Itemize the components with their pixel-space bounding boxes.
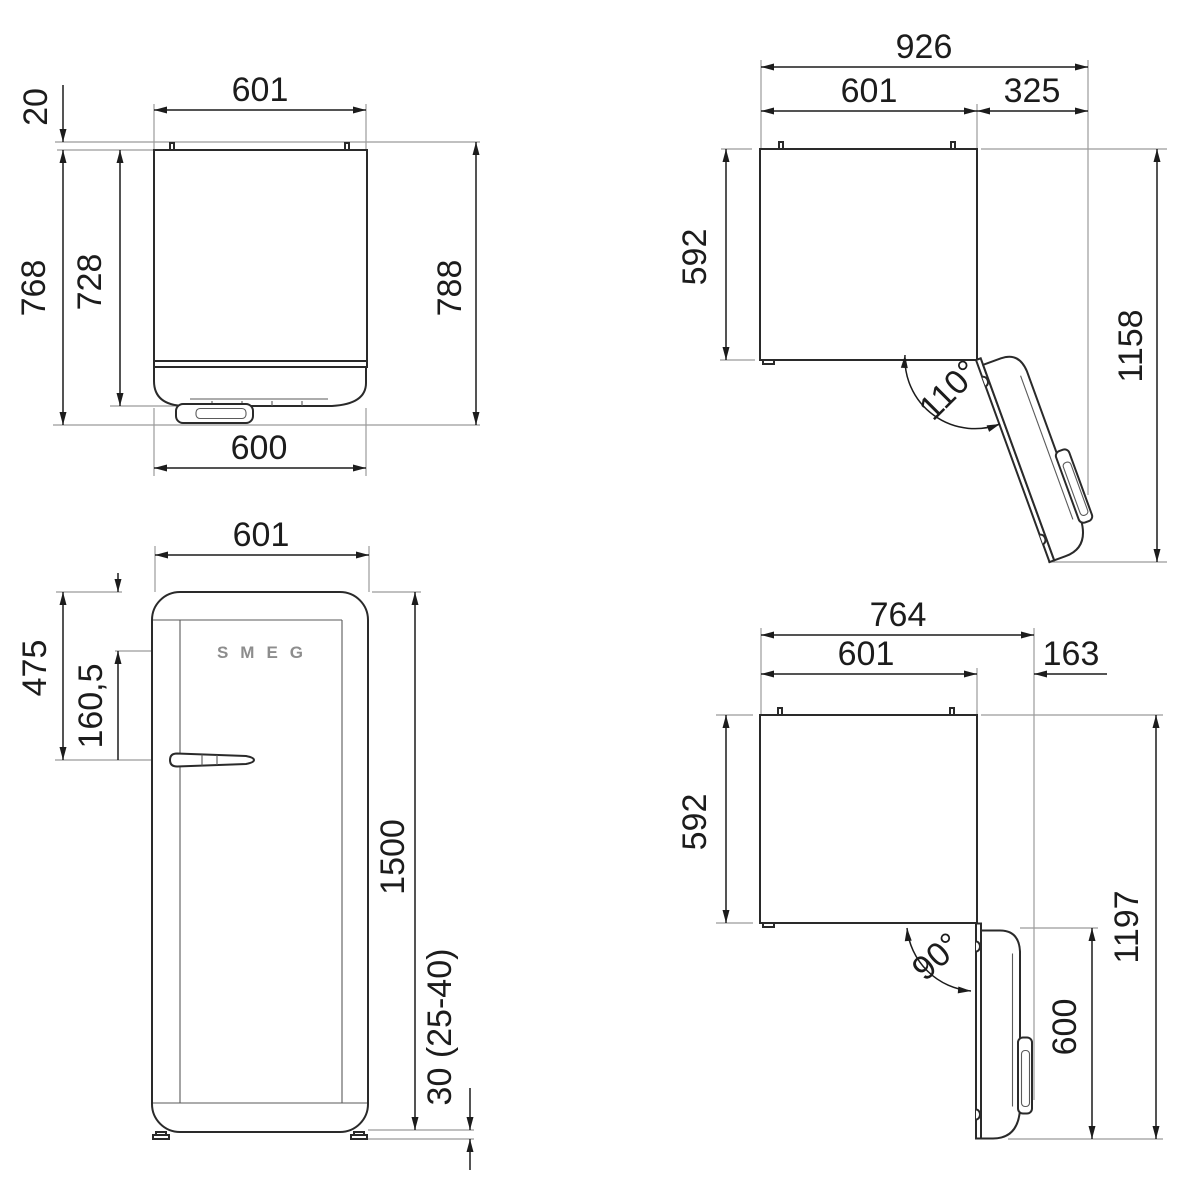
dim-label-handle-from-top: 475 xyxy=(16,640,54,697)
foot-base xyxy=(351,1135,367,1139)
dim-label-width: 601 xyxy=(233,516,290,554)
cabinet-body-top-view xyxy=(760,149,977,360)
hinge-spacer-left xyxy=(779,142,783,149)
dim-label-total-depth: 788 xyxy=(431,260,469,317)
door-stop-notch xyxy=(763,923,774,927)
dim-label-body-depth: 728 xyxy=(71,254,109,311)
dim-label-width-top: 601 xyxy=(232,71,289,109)
dim-label-total-width: 764 xyxy=(870,596,927,634)
dim-label-angle: 90° xyxy=(905,926,969,989)
dimension-drawing-canvas: 601 20 768 728 788 600 926 601 325 592 1… xyxy=(0,0,1200,1200)
foot-base xyxy=(153,1135,169,1139)
hinge-spacer-left xyxy=(170,143,174,150)
dim-label-wall-gap: 20 xyxy=(17,88,55,126)
dim-label-width-bottom: 600 xyxy=(231,429,288,467)
dim-label-door-depth: 600 xyxy=(1046,999,1084,1056)
dim-label-depth-to-front: 768 xyxy=(15,260,53,317)
view-top-closed: 601 20 768 728 788 600 xyxy=(15,71,480,476)
hinge-spacer-right xyxy=(950,708,954,715)
fridge-front-outline xyxy=(152,592,368,1132)
dim-label-total-depth: 1197 xyxy=(1108,890,1146,963)
dim-label-body-depth: 592 xyxy=(676,794,714,851)
dim-label-body-depth: 592 xyxy=(676,229,714,286)
front-handle xyxy=(170,754,254,767)
hinge-spacer-right xyxy=(345,143,349,150)
dim-label-body-width: 601 xyxy=(841,72,898,110)
dim-label-height: 1500 xyxy=(374,819,412,895)
dim-label-door-side: 163 xyxy=(1043,635,1100,673)
technical-drawing-page: 601 20 768 728 788 600 926 601 325 592 1… xyxy=(0,0,1200,1200)
hinge-spacer-left xyxy=(778,708,782,715)
hinge-spacer-right xyxy=(951,142,955,149)
dim-label-feet: 30 (25-40) xyxy=(421,949,459,1106)
dim-label-total-depth: 1158 xyxy=(1112,309,1150,382)
cabinet-body-top-view xyxy=(760,715,977,923)
dim-label-total-width: 926 xyxy=(896,28,953,66)
door-handle xyxy=(176,404,253,423)
foot-left xyxy=(153,1132,169,1139)
cabinet-body-top-view xyxy=(154,150,367,361)
dim-label-door-side: 325 xyxy=(1004,72,1061,110)
smeg-logo: SMEG xyxy=(217,643,315,662)
open-door-110 xyxy=(976,341,1102,562)
dim-label-logo-from-top: 160,5 xyxy=(72,663,110,748)
view-top-open-90: 764 601 163 592 1197 600 90° xyxy=(676,596,1163,1139)
open-door-90 xyxy=(976,924,1032,1139)
door-stop-notch xyxy=(763,360,774,364)
dim-label-body-width: 601 xyxy=(838,635,895,673)
view-top-open-110: 926 601 325 592 1158 110° xyxy=(676,28,1167,562)
dim-label-angle: 110° xyxy=(912,353,987,428)
door-slab xyxy=(154,367,366,406)
foot-right xyxy=(351,1132,367,1139)
view-front: SMEG 601 475 160,5 1500 30 (25-40) xyxy=(16,516,474,1170)
